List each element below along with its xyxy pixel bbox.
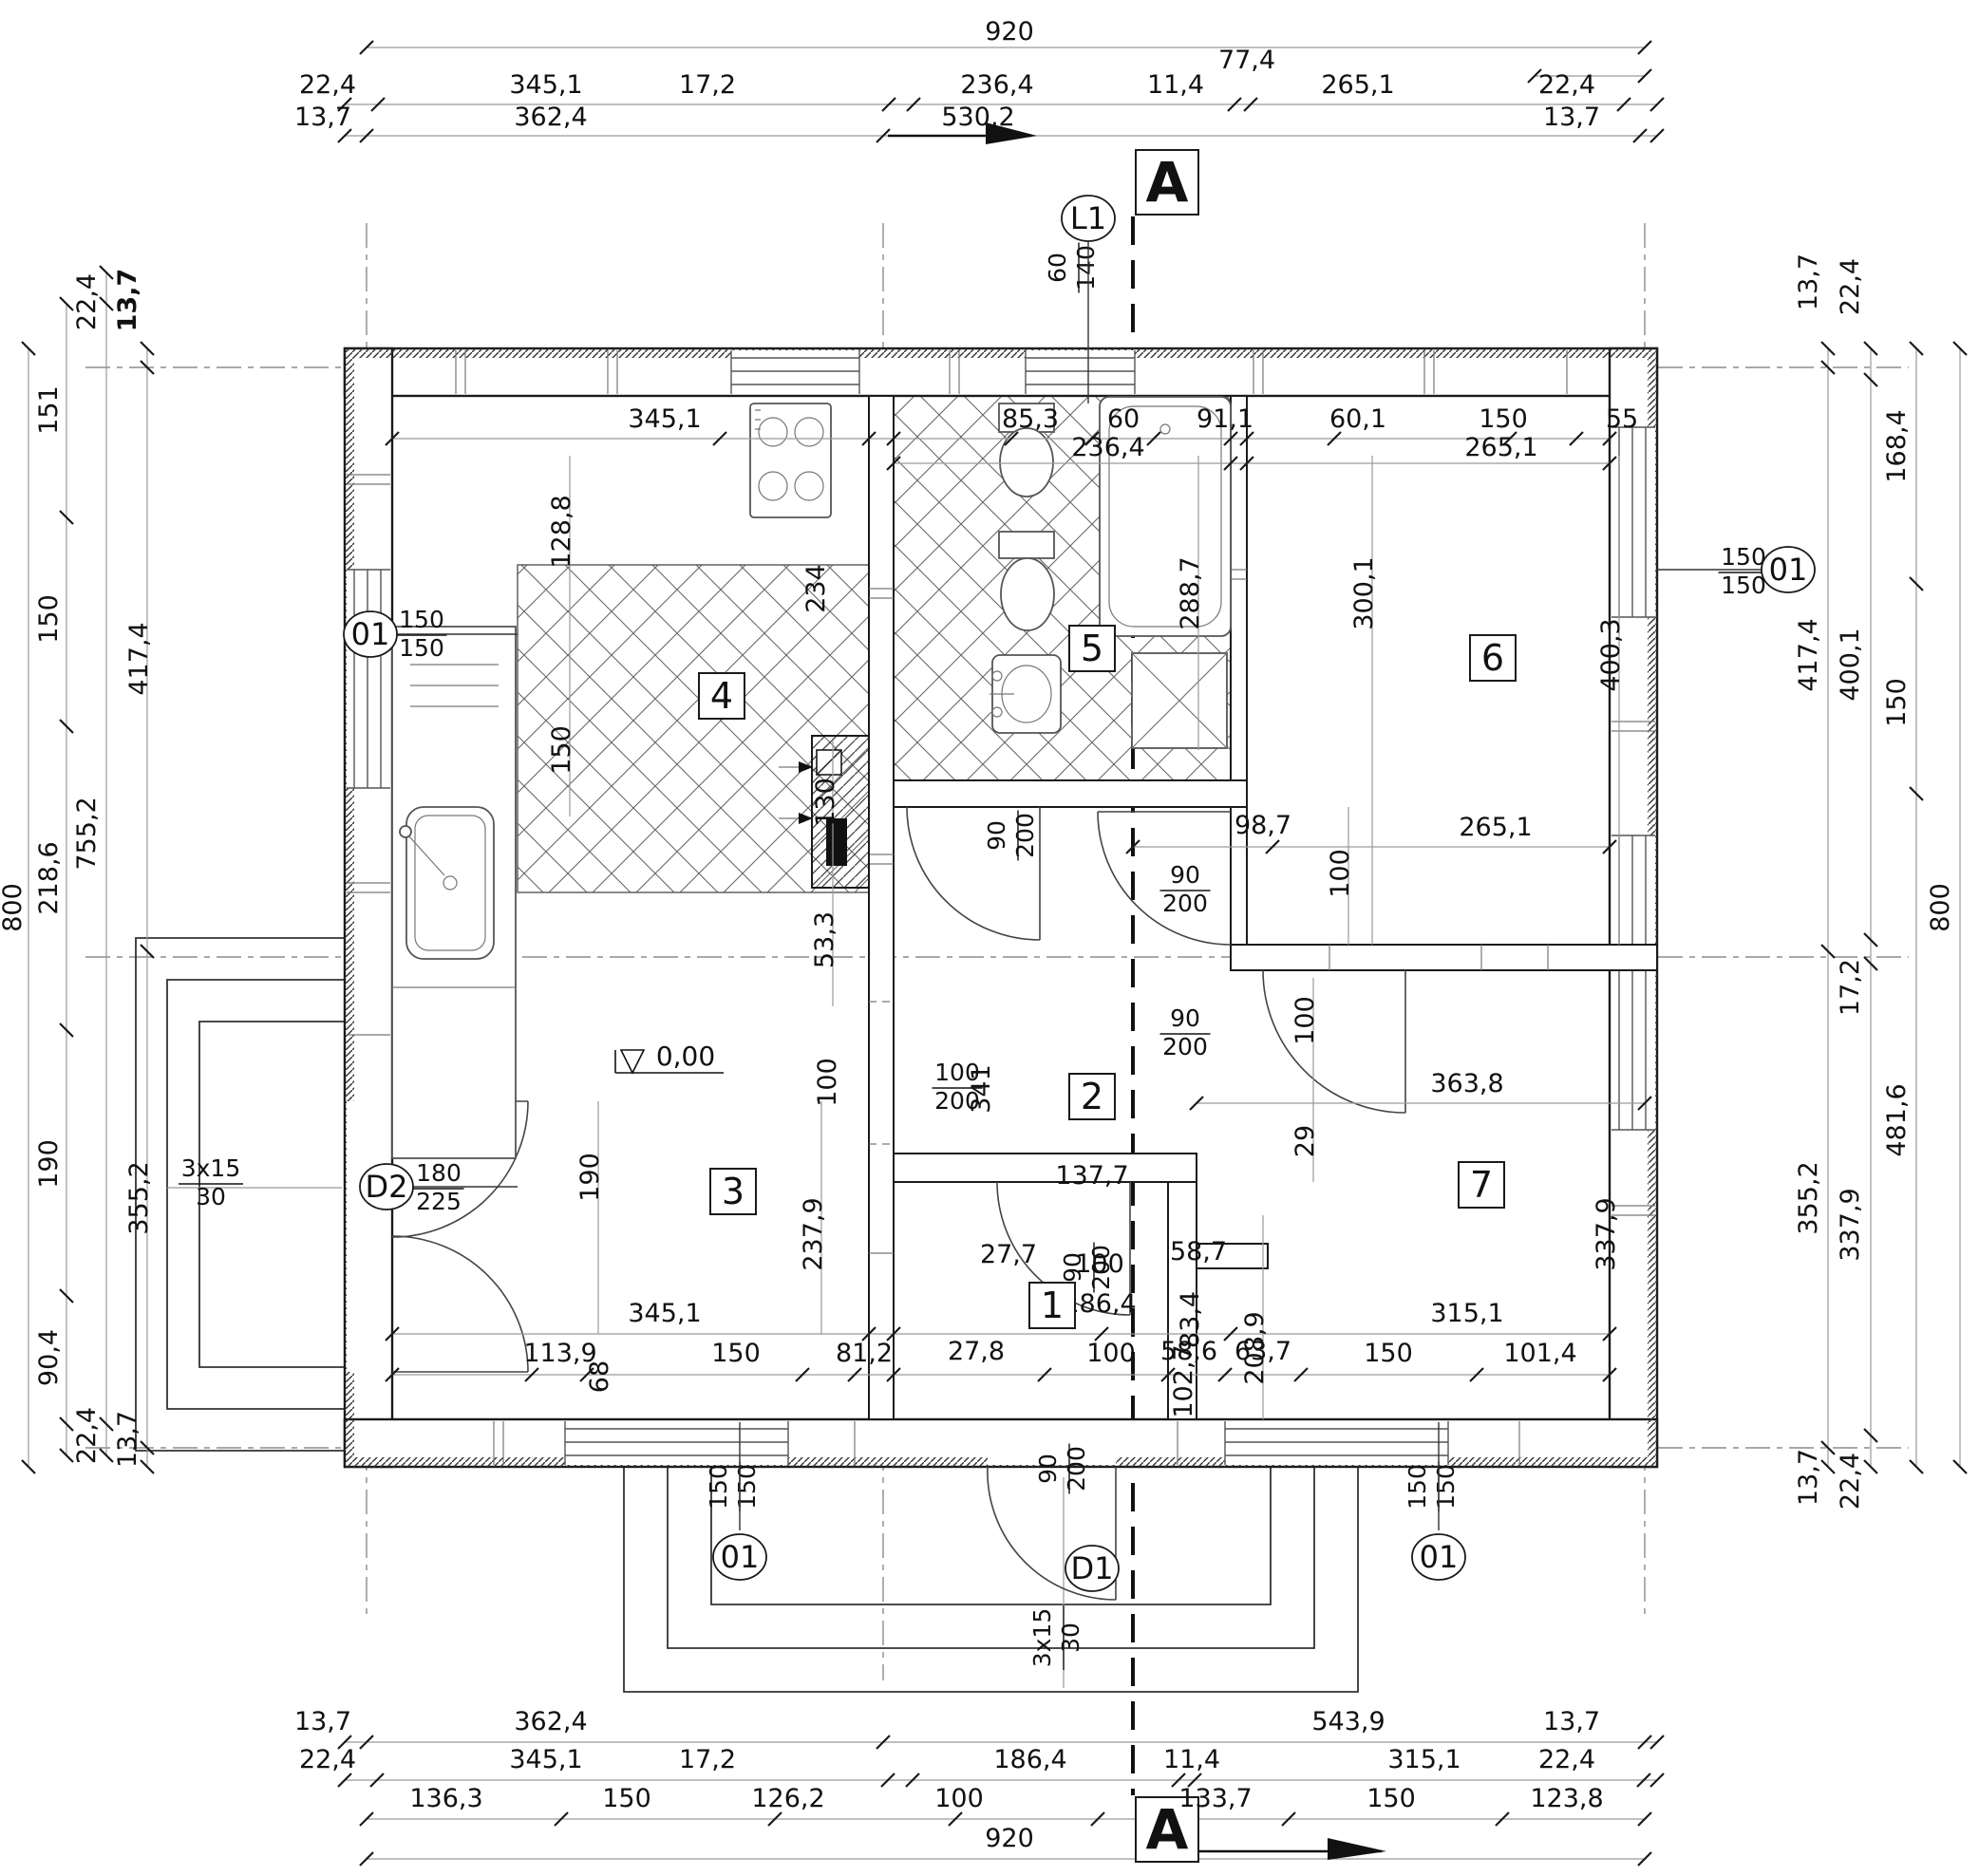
shower xyxy=(1132,653,1227,748)
dim-label: 13,7 xyxy=(1794,253,1823,310)
dim-label: 100 xyxy=(1326,849,1355,898)
dim-label: 98,7 xyxy=(1235,811,1291,840)
dim-label: 315,1 xyxy=(1387,1745,1461,1774)
opening-room7-door xyxy=(1263,947,1405,969)
dim-label: 150 xyxy=(34,594,64,644)
dim-label: 53,3 xyxy=(810,911,839,968)
dim-label: 355,2 xyxy=(1794,1161,1823,1234)
window-right-room6 xyxy=(1611,835,1655,1130)
fraction-label: 150150 xyxy=(1404,1462,1460,1512)
dim-label: 800 xyxy=(1926,883,1955,932)
fraction-bottom: 225 xyxy=(416,1188,462,1215)
dim-label: 13,7 xyxy=(1543,103,1600,132)
dim-label: 150 xyxy=(1479,404,1528,434)
opening-tag-d1: D1 xyxy=(1065,1546,1119,1591)
dim-label: 22,4 xyxy=(1538,70,1595,100)
fraction-top: 90 xyxy=(1059,1252,1086,1283)
door-room7 xyxy=(1263,970,1405,1113)
stove xyxy=(750,403,831,517)
dim-label: 150 xyxy=(711,1339,761,1368)
dim-label: 337,9 xyxy=(1592,1197,1621,1270)
bidet xyxy=(999,532,1054,630)
top-wall-cladding xyxy=(345,348,1657,358)
dim-label: 27,7 xyxy=(980,1240,1037,1269)
room-tag-number: 5 xyxy=(1081,628,1103,669)
dim-label: 63,7 xyxy=(1235,1337,1291,1366)
dim-label: 265,1 xyxy=(1321,70,1394,100)
opening-tag-text: 01 xyxy=(1769,552,1808,588)
dim-label: 337,9 xyxy=(1836,1188,1865,1261)
dim-label: 137,7 xyxy=(1055,1161,1128,1191)
dim-label: 920 xyxy=(985,1824,1034,1853)
dim-label: 300,1 xyxy=(1349,556,1379,629)
dim-label: 186,4 xyxy=(993,1745,1066,1774)
opening-tag-text: D1 xyxy=(1071,1550,1114,1586)
dim-label: 355,2 xyxy=(124,1161,154,1234)
dim-label: 345,1 xyxy=(628,404,701,434)
fraction-bottom: 200 xyxy=(1063,1446,1090,1491)
window-top-kitchen xyxy=(731,350,859,394)
dim-label: 130 xyxy=(811,778,840,827)
opening-tag-text: D2 xyxy=(366,1169,408,1205)
opening-hall xyxy=(871,1002,893,1144)
level-mark: 0,00 xyxy=(615,1041,724,1073)
dim-label: 81,2 xyxy=(836,1339,893,1368)
dim-label: 60 xyxy=(1107,404,1140,434)
room-tag: 7 xyxy=(1459,1162,1504,1208)
window-bottom-room7 xyxy=(1225,1421,1448,1465)
dim-label: 345,1 xyxy=(509,1745,582,1774)
room-tag: 3 xyxy=(710,1169,756,1214)
dim-label: 345,1 xyxy=(628,1299,701,1328)
dim-label: 417,4 xyxy=(1794,618,1823,691)
fraction-top: 90 xyxy=(1034,1454,1062,1484)
dim-label: 190 xyxy=(34,1139,64,1189)
fraction-top: 3x15 xyxy=(1028,1608,1056,1668)
dim-label: 481,6 xyxy=(1882,1083,1912,1156)
dim-label: 13,7 xyxy=(294,1707,351,1736)
fraction-bottom: 200 xyxy=(1087,1245,1115,1290)
dim-label: 315,1 xyxy=(1430,1299,1503,1328)
dim-label: 236,4 xyxy=(960,70,1033,100)
room-tag-number: 6 xyxy=(1481,637,1504,679)
dim-label: 288,7 xyxy=(1176,556,1205,629)
dim-label: 13,7 xyxy=(113,269,142,332)
dim-label: 101,4 xyxy=(1503,1339,1576,1368)
dim-label: 150 xyxy=(602,1784,651,1813)
dim-label: 22,4 xyxy=(1836,258,1865,315)
fraction-label: 3x1530 xyxy=(179,1154,243,1210)
fraction-label: 90200 xyxy=(1160,1004,1211,1060)
dim-label: 77,4 xyxy=(1218,46,1275,75)
dim-label: 234 xyxy=(801,564,831,613)
section-marker-bottom: A xyxy=(1136,1797,1386,1862)
fraction-bottom: 200 xyxy=(934,1087,980,1115)
dim-label: 920 xyxy=(985,17,1034,47)
fraction-top: 150 xyxy=(1721,543,1766,571)
opening-tag-text: 01 xyxy=(351,616,390,652)
dim-label: 800 xyxy=(0,883,28,932)
floor-plan-sheet: 0,00 xyxy=(0,0,1979,1876)
fraction-label: 90200 xyxy=(983,811,1039,861)
fraction-bottom: 150 xyxy=(1432,1464,1460,1510)
wall-hall-left xyxy=(869,396,894,1419)
dim-label: 128,8 xyxy=(547,495,576,568)
dim-label: 345,1 xyxy=(509,70,582,100)
dim-label: 755,2 xyxy=(72,797,102,870)
dim-label: 13,7 xyxy=(1543,1707,1600,1736)
dim-label: 543,9 xyxy=(1311,1707,1385,1736)
dimension-ticks xyxy=(22,41,1967,1866)
window-top-bath-l1 xyxy=(1026,350,1135,394)
fraction-label: 3x1530 xyxy=(1028,1605,1084,1670)
dim-label: 126,2 xyxy=(751,1784,824,1813)
fraction-top: 150 xyxy=(1404,1464,1431,1510)
fraction-bottom: 200 xyxy=(1162,890,1208,917)
dim-label: 22,4 xyxy=(299,70,356,100)
dim-label: 22,4 xyxy=(1538,1745,1595,1774)
dim-label: 400,3 xyxy=(1596,618,1626,691)
dim-label: 123,8 xyxy=(1530,1784,1603,1813)
dim-label: 218,6 xyxy=(34,841,64,914)
room-tag: 1 xyxy=(1029,1283,1075,1328)
terrace-steps xyxy=(136,938,345,1451)
dim-label: 85,3 xyxy=(1002,404,1059,434)
fraction-top: 60 xyxy=(1044,253,1071,283)
dim-label: 150 xyxy=(547,725,576,775)
dimension-lines xyxy=(28,47,1960,1859)
room-tag-number: 3 xyxy=(722,1171,744,1212)
fraction-bottom: 150 xyxy=(399,634,444,662)
dim-label: 11,4 xyxy=(1147,70,1204,100)
dim-label: 237,9 xyxy=(799,1197,828,1270)
dim-label: 265,1 xyxy=(1459,813,1532,842)
dimension-labels: 92022,4345,117,2236,411,4265,122,413,736… xyxy=(0,17,1955,1853)
section-letter-top: A xyxy=(1146,150,1189,215)
fraction-bottom: 150 xyxy=(1721,572,1766,599)
dim-label: 22,4 xyxy=(299,1745,356,1774)
room-tag: 5 xyxy=(1069,626,1115,671)
dim-label: 13,7 xyxy=(294,103,351,132)
dim-label: 133,7 xyxy=(1178,1784,1252,1813)
dim-label: 190 xyxy=(575,1153,605,1202)
window-bottom-room3 xyxy=(565,1421,788,1465)
dim-label: 150 xyxy=(1364,1339,1413,1368)
dim-label: 100 xyxy=(813,1058,842,1107)
opening-d2 xyxy=(347,1101,390,1372)
fraction-bottom: 200 xyxy=(1011,813,1039,858)
room-tag: 4 xyxy=(699,673,744,719)
fraction-top: 90 xyxy=(983,820,1010,851)
dim-label: 100 xyxy=(1086,1339,1136,1368)
dim-label: 13,7 xyxy=(113,1411,142,1468)
dim-label: 11,4 xyxy=(1163,1745,1220,1774)
dim-label: 168,4 xyxy=(1882,409,1912,482)
fraction-label: 150150 xyxy=(705,1462,761,1512)
dim-label: 22,4 xyxy=(1836,1453,1865,1510)
opening-tag-text: 01 xyxy=(721,1539,760,1575)
fraction-top: 3x15 xyxy=(181,1154,241,1182)
level-value: 0,00 xyxy=(656,1041,715,1072)
fraction-top: 180 xyxy=(416,1159,462,1187)
fraction-top: 90 xyxy=(1170,1004,1200,1032)
door-room6 xyxy=(1098,812,1231,945)
dim-label: 362,4 xyxy=(514,103,587,132)
fraction-top: 90 xyxy=(1170,861,1200,889)
fraction-bottom: 30 xyxy=(1057,1623,1084,1653)
dim-label: 60,1 xyxy=(1329,404,1386,434)
dim-label: 17,2 xyxy=(1836,959,1865,1016)
dim-label: 150 xyxy=(1882,678,1912,727)
wash-basin xyxy=(989,655,1061,733)
opening-tag-text: 01 xyxy=(1420,1539,1459,1575)
dim-label: 58,7 xyxy=(1170,1237,1227,1266)
fraction-label: 60140 xyxy=(1044,243,1100,293)
fraction-top: 100 xyxy=(934,1059,980,1086)
floor-plan-drawing: 0,00 xyxy=(0,0,1979,1876)
dim-label: 100 xyxy=(934,1784,984,1813)
room-tag-number: 1 xyxy=(1041,1285,1064,1326)
opening-bath-door xyxy=(907,782,1040,806)
dim-label: 236,4 xyxy=(1071,433,1144,462)
window-left-kitchen xyxy=(347,570,390,788)
room-tag-number: 7 xyxy=(1470,1164,1493,1206)
dim-label: 100 xyxy=(1291,996,1320,1045)
section-arrow-bottom xyxy=(1328,1838,1386,1860)
window-right-room6-upper xyxy=(1611,427,1655,617)
dim-label: 55 xyxy=(1606,404,1638,434)
fraction-bottom: 30 xyxy=(196,1183,226,1210)
dim-label: 400,1 xyxy=(1836,628,1865,701)
dim-label: 363,8 xyxy=(1430,1069,1503,1098)
opening-tag-text: L1 xyxy=(1070,200,1106,236)
room-tag: 6 xyxy=(1470,635,1516,681)
dim-label: 362,4 xyxy=(514,1707,587,1736)
dim-label: 13,7 xyxy=(1794,1449,1823,1506)
fraction-top: 150 xyxy=(399,606,444,633)
dim-label: 22,4 xyxy=(72,273,102,330)
dim-label: 58,6 xyxy=(1160,1337,1217,1366)
dim-label: 22,4 xyxy=(72,1407,102,1464)
kitchen-sink-counter xyxy=(392,627,516,1158)
fraction-bottom: 140 xyxy=(1072,245,1100,291)
dim-label: 150 xyxy=(1366,1784,1416,1813)
dim-label: 17,2 xyxy=(679,1745,736,1774)
doors xyxy=(392,807,1405,1600)
dim-label: 68 xyxy=(585,1360,614,1393)
dim-label: 90,4 xyxy=(34,1329,64,1386)
dim-label: 265,1 xyxy=(1464,433,1537,462)
room-tag-number: 2 xyxy=(1081,1076,1103,1117)
dim-label: 91,1 xyxy=(1197,404,1253,434)
dim-label: 17,2 xyxy=(679,70,736,100)
fraction-label: 100200 xyxy=(933,1059,983,1115)
fraction-bottom: 200 xyxy=(1162,1033,1208,1060)
dim-label: 29 xyxy=(1291,1125,1320,1157)
dim-label: 151 xyxy=(34,385,64,435)
dim-label: 530,2 xyxy=(941,103,1014,132)
room-tag-number: 4 xyxy=(710,675,733,717)
fraction-top: 150 xyxy=(705,1464,732,1510)
dim-label: 417,4 xyxy=(124,622,154,695)
dim-label: 27,8 xyxy=(948,1337,1005,1366)
dim-label: 136,3 xyxy=(409,1784,482,1813)
fraction-label: 90200 xyxy=(1160,861,1211,917)
fraction-bottom: 150 xyxy=(733,1464,761,1510)
room-tag: 2 xyxy=(1069,1074,1115,1119)
